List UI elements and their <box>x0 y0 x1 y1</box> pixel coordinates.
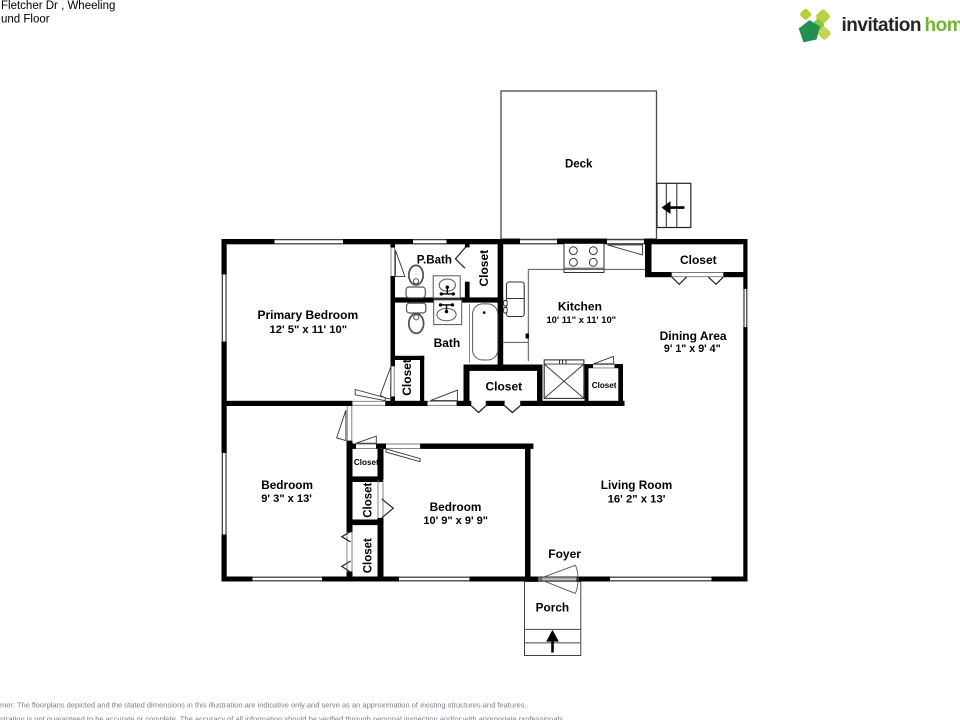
svg-text:Living Room: Living Room <box>601 478 672 492</box>
svg-text:Closet: Closet <box>400 359 414 396</box>
svg-text:12' 5" x 11' 10": 12' 5" x 11' 10" <box>270 324 348 336</box>
svg-text:Deck: Deck <box>565 159 593 171</box>
svg-text:10' 11" x 11' 10": 10' 11" x 11' 10" <box>546 314 616 325</box>
svg-text:Fletcher Dr , Wheeling: Fletcher Dr , Wheeling <box>1 0 115 12</box>
svg-text:Bath: Bath <box>434 336 461 350</box>
svg-text:Kitchen: Kitchen <box>558 299 602 313</box>
svg-text:9' 1" x 9' 4": 9' 1" x 9' 4" <box>664 343 721 355</box>
svg-text:Porch: Porch <box>536 601 569 615</box>
svg-text:Foyer: Foyer <box>548 547 581 561</box>
svg-text:und Floor: und Floor <box>1 13 50 25</box>
svg-text:Disclaimer: The floorplans dep: Disclaimer: The floorplans depicted and … <box>0 701 527 710</box>
svg-text:Dining Area: Dining Area <box>660 329 727 343</box>
svg-text:P.Bath: P.Bath <box>417 254 452 267</box>
svg-text:homes: homes <box>925 15 960 36</box>
svg-text:This illustration is not guara: This illustration is not guaranteed to b… <box>0 715 565 720</box>
svg-text:Bedroom: Bedroom <box>430 500 482 514</box>
svg-text:Closet: Closet <box>680 253 717 267</box>
svg-text:Closet: Closet <box>592 381 617 390</box>
svg-text:10' 9" x 9' 9": 10' 9" x 9' 9" <box>423 515 488 527</box>
svg-text:Primary Bedroom: Primary Bedroom <box>257 308 358 322</box>
svg-text:Closet: Closet <box>477 250 491 287</box>
svg-text:16' 2" x 13': 16' 2" x 13' <box>608 494 666 506</box>
svg-text:Closet: Closet <box>363 482 375 517</box>
svg-text:invitation: invitation <box>842 15 921 36</box>
svg-text:Bedroom: Bedroom <box>261 478 313 492</box>
svg-text:Closet: Closet <box>485 379 522 393</box>
svg-text:Closet: Closet <box>363 538 375 573</box>
svg-text:Closet: Closet <box>354 458 379 467</box>
svg-text:9' 3" x 13': 9' 3" x 13' <box>261 493 312 505</box>
